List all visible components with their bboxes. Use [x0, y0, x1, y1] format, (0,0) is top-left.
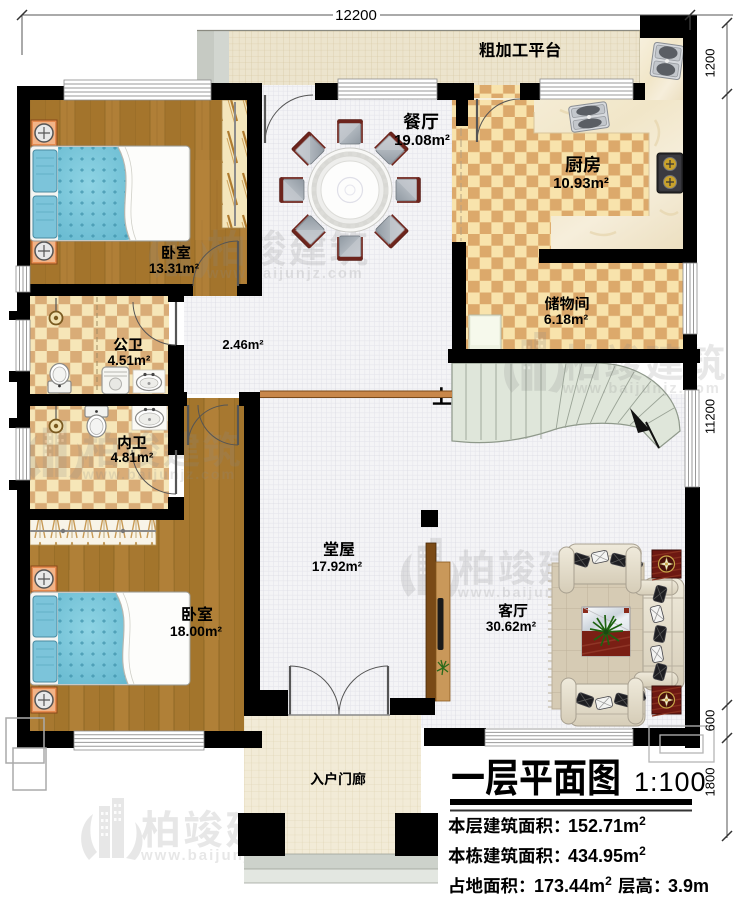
- svg-text:434.95m2: 434.95m2: [568, 844, 646, 866]
- svg-text:10.93m²: 10.93m²: [553, 175, 609, 192]
- svg-text:19.08m²: 19.08m²: [394, 132, 450, 149]
- svg-text:11200: 11200: [703, 399, 718, 434]
- svg-text:173.44m2: 173.44m2: [534, 874, 612, 896]
- svg-text:30.62m²: 30.62m²: [486, 619, 537, 634]
- svg-text:152.71m2: 152.71m2: [568, 814, 646, 836]
- svg-text:4.51m²: 4.51m²: [108, 353, 151, 368]
- svg-text:18.00m²: 18.00m²: [170, 623, 222, 639]
- svg-text:www.baijunjz.com: www.baijunjz.com: [206, 266, 364, 282]
- svg-text:12200: 12200: [335, 7, 377, 24]
- svg-text:13.31m²: 13.31m²: [149, 261, 200, 276]
- svg-text:3.9m: 3.9m: [668, 876, 709, 896]
- svg-text:4.81m²: 4.81m²: [111, 450, 154, 465]
- svg-text:17.92m²: 17.92m²: [312, 559, 363, 574]
- svg-text:600: 600: [703, 710, 718, 732]
- svg-text:1200: 1200: [703, 49, 718, 78]
- svg-text:2.46m²: 2.46m²: [222, 337, 264, 352]
- svg-text:www.baijunjz.com: www.baijunjz.com: [82, 467, 236, 483]
- svg-text:1:100: 1:100: [634, 767, 707, 797]
- svg-text:6.18m²: 6.18m²: [544, 311, 589, 327]
